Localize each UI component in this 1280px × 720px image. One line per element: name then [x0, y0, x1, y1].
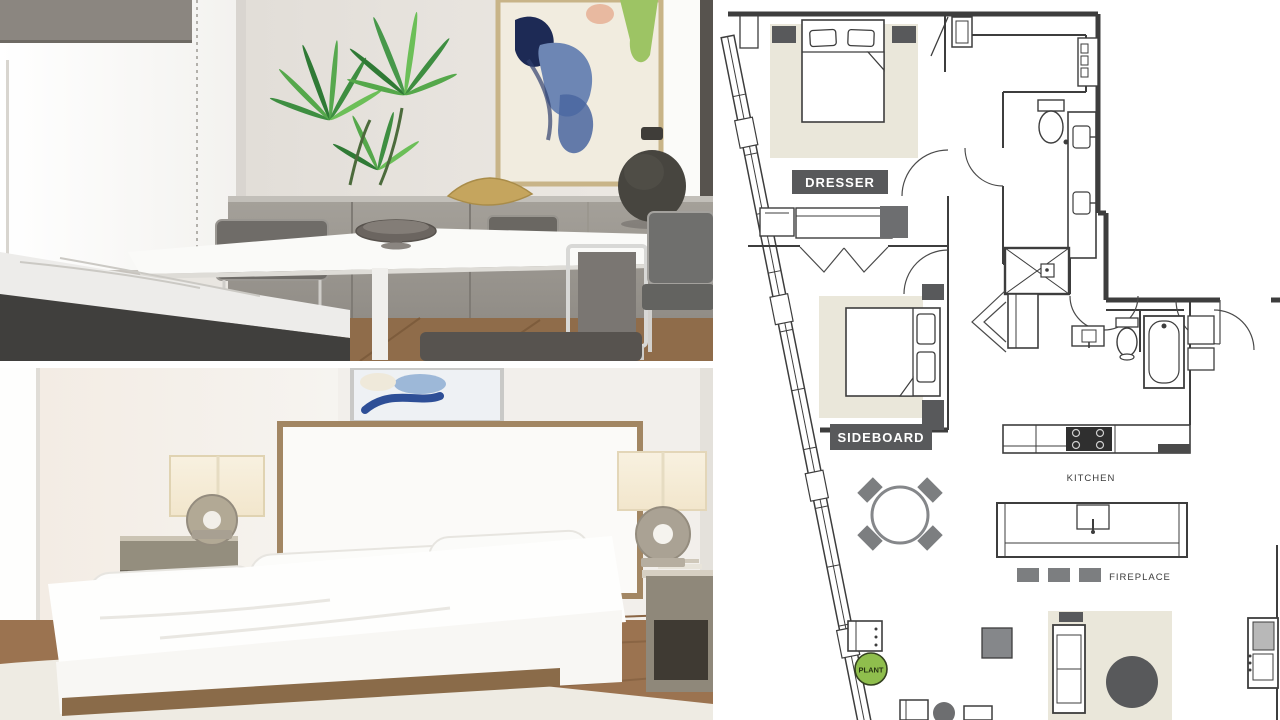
- sideboard-label: SIDEBOARD: [830, 424, 932, 450]
- counter-cabinet: [1158, 444, 1190, 453]
- closet: [1188, 316, 1214, 344]
- pillow: [848, 30, 875, 47]
- guest-bed: [846, 308, 940, 396]
- console: [1072, 326, 1104, 348]
- shower: [1005, 248, 1069, 294]
- sofa-side-table: [1059, 612, 1083, 622]
- round-coffee-table: [1106, 656, 1158, 708]
- pillow: [810, 29, 837, 46]
- sink: [1073, 192, 1090, 214]
- window-armchair: [848, 621, 882, 651]
- interior-design-collage: DRESSER: [0, 0, 1280, 720]
- sink: [1073, 126, 1090, 148]
- fireplace-unit: [1248, 618, 1278, 688]
- side-table: [982, 628, 1012, 658]
- laundry-closet: [1078, 38, 1098, 86]
- plant-marker: PLANT: [855, 653, 887, 685]
- bar-stool: [1079, 568, 1101, 582]
- bedroom-photo: [0, 368, 713, 720]
- window-sliver: [0, 368, 40, 630]
- dresser-label: DRESSER: [792, 170, 888, 194]
- floor-plan: DRESSER: [720, 0, 1280, 720]
- stove: [1066, 427, 1112, 451]
- fireplace-label-text: FIREPLACE: [1109, 572, 1171, 583]
- pillow: [917, 352, 935, 382]
- dining-room-photo-image: [0, 0, 713, 361]
- bedroom-photo-image: [0, 368, 713, 720]
- bar-stool: [1017, 568, 1039, 582]
- kitchen-label-text: KITCHEN: [1067, 473, 1116, 484]
- kitchen-island: [997, 503, 1187, 557]
- plant-label-text: PLANT: [859, 666, 884, 675]
- floor-plan-drawing: DRESSER: [720, 0, 1280, 720]
- dining-room-photo: [0, 0, 713, 361]
- small-chair: [964, 706, 992, 720]
- dresser-end-cabinet: [880, 206, 908, 238]
- double-vanity: [1068, 112, 1096, 258]
- sideboard-label-text: SIDEBOARD: [837, 430, 924, 445]
- armchair: [1008, 294, 1038, 348]
- bedroom-artwork: [352, 368, 502, 422]
- bathtub: [1144, 316, 1184, 388]
- dresser: [760, 206, 908, 238]
- corner-window-box: [740, 14, 758, 48]
- nightstand-right: [642, 559, 713, 692]
- master-bed: [802, 20, 884, 122]
- small-chair: [900, 700, 928, 720]
- nightstand: [922, 284, 944, 300]
- dresser-label-text: DRESSER: [805, 175, 875, 190]
- sofa: [1053, 625, 1085, 713]
- nightstand: [892, 26, 916, 43]
- guest-bedroom: SIDEBOARD: [830, 284, 944, 450]
- pillow: [917, 314, 935, 344]
- bar-stool: [1048, 568, 1070, 582]
- closet: [1188, 348, 1214, 370]
- nightstand: [772, 26, 796, 43]
